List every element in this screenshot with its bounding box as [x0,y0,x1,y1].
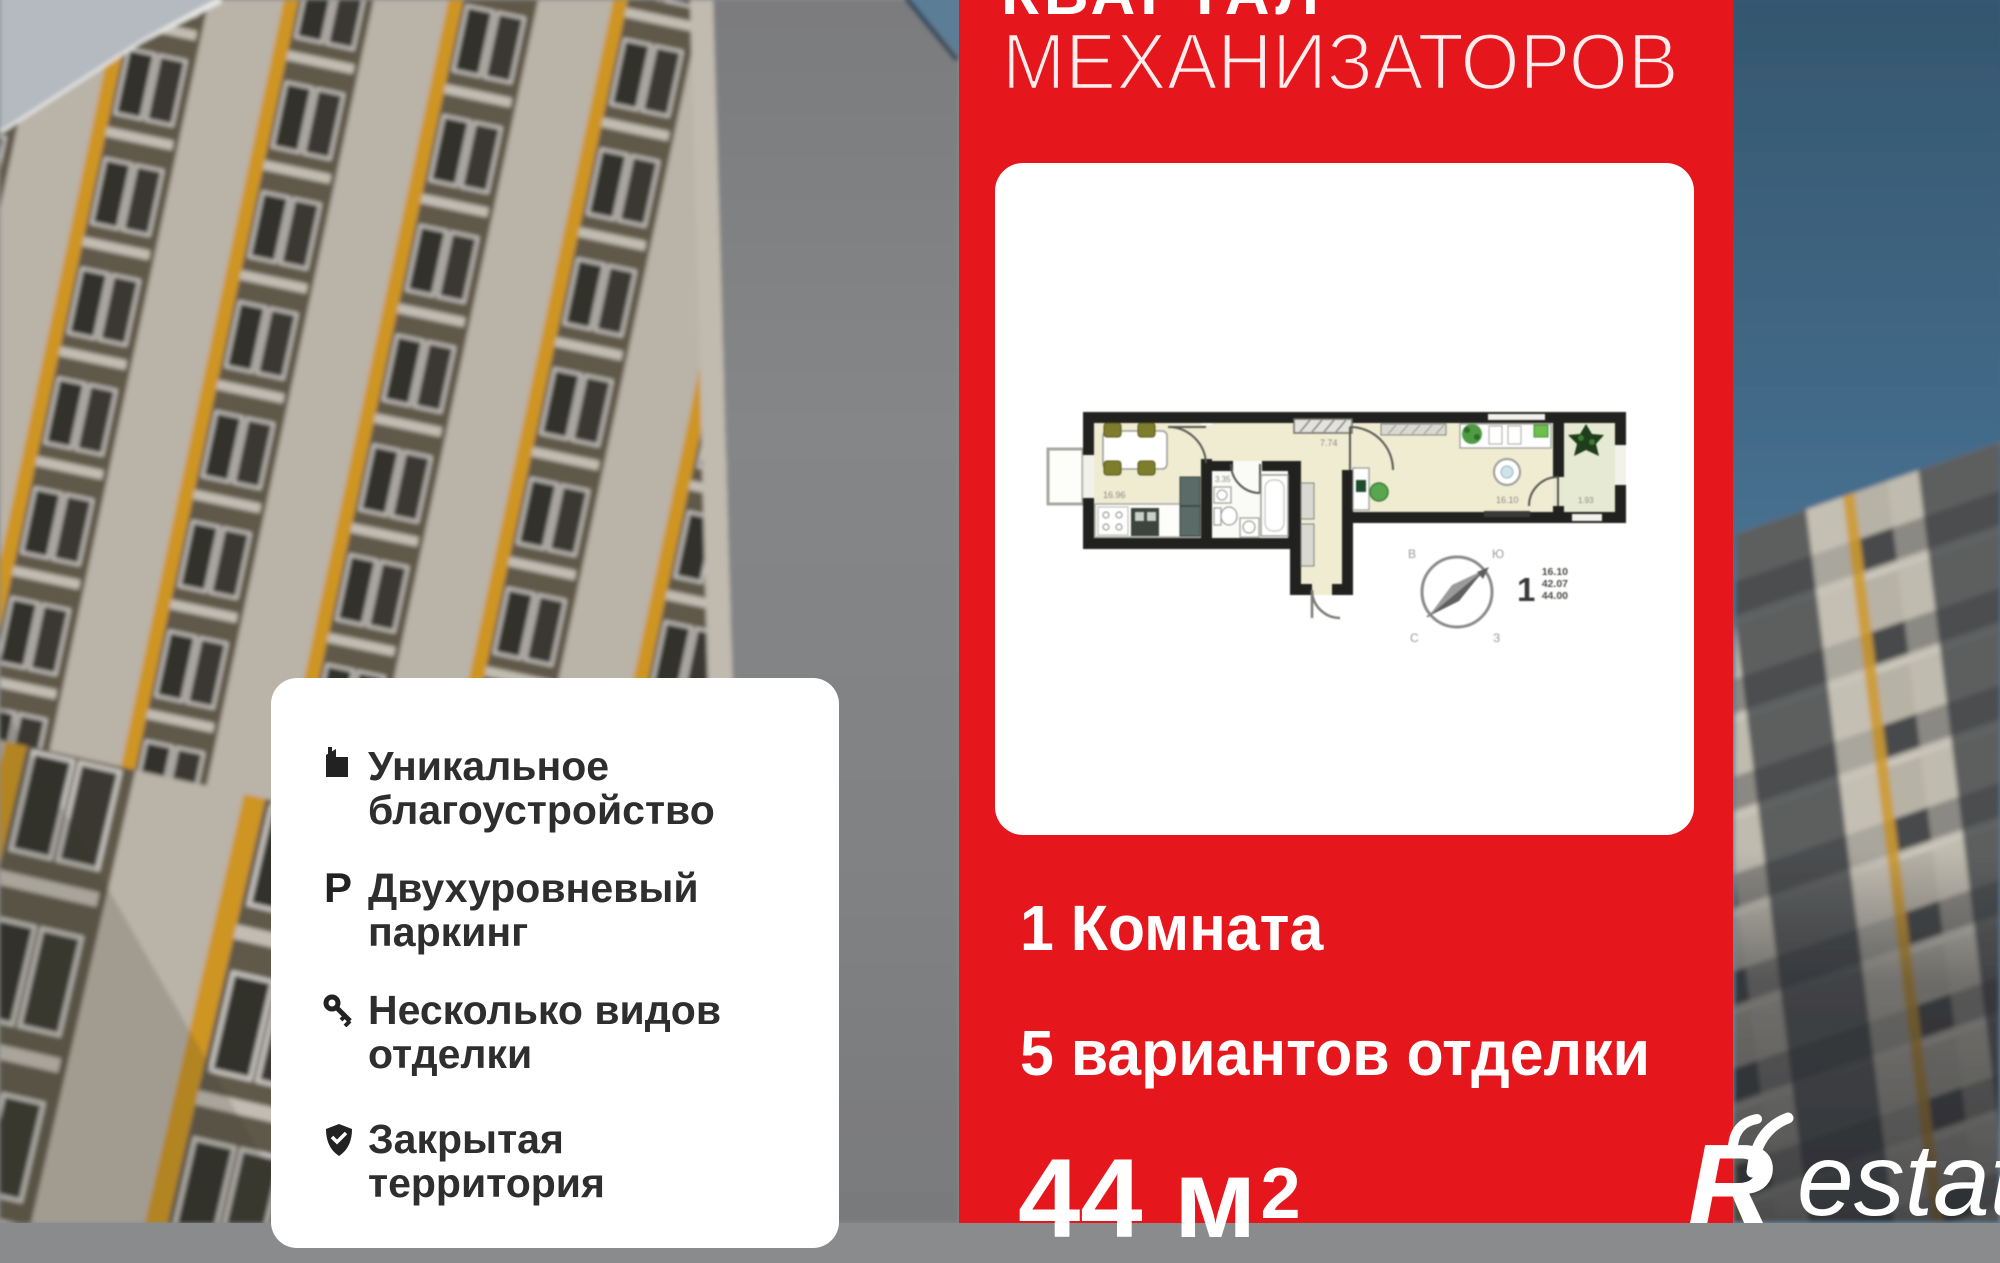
svg-text:16.96: 16.96 [1103,490,1126,500]
svg-text:16.10: 16.10 [1496,495,1519,505]
svg-text:7.74: 7.74 [1320,438,1338,448]
svg-text:В: В [1408,547,1416,561]
svg-text:1.93: 1.93 [1578,496,1594,505]
svg-text:estate: estate [1797,1123,2000,1223]
svg-text:З: З [1493,631,1500,645]
svg-text:1: 1 [1517,571,1535,608]
svg-text:42.07: 42.07 [1542,578,1568,590]
svg-text:16.10: 16.10 [1542,566,1568,578]
svg-text:44.00: 44.00 [1542,590,1568,602]
svg-text:Ю: Ю [1492,547,1504,561]
svg-text:С: С [1410,631,1419,645]
svg-text:R: R [1687,1120,1774,1223]
svg-text:3.35: 3.35 [1215,475,1231,484]
